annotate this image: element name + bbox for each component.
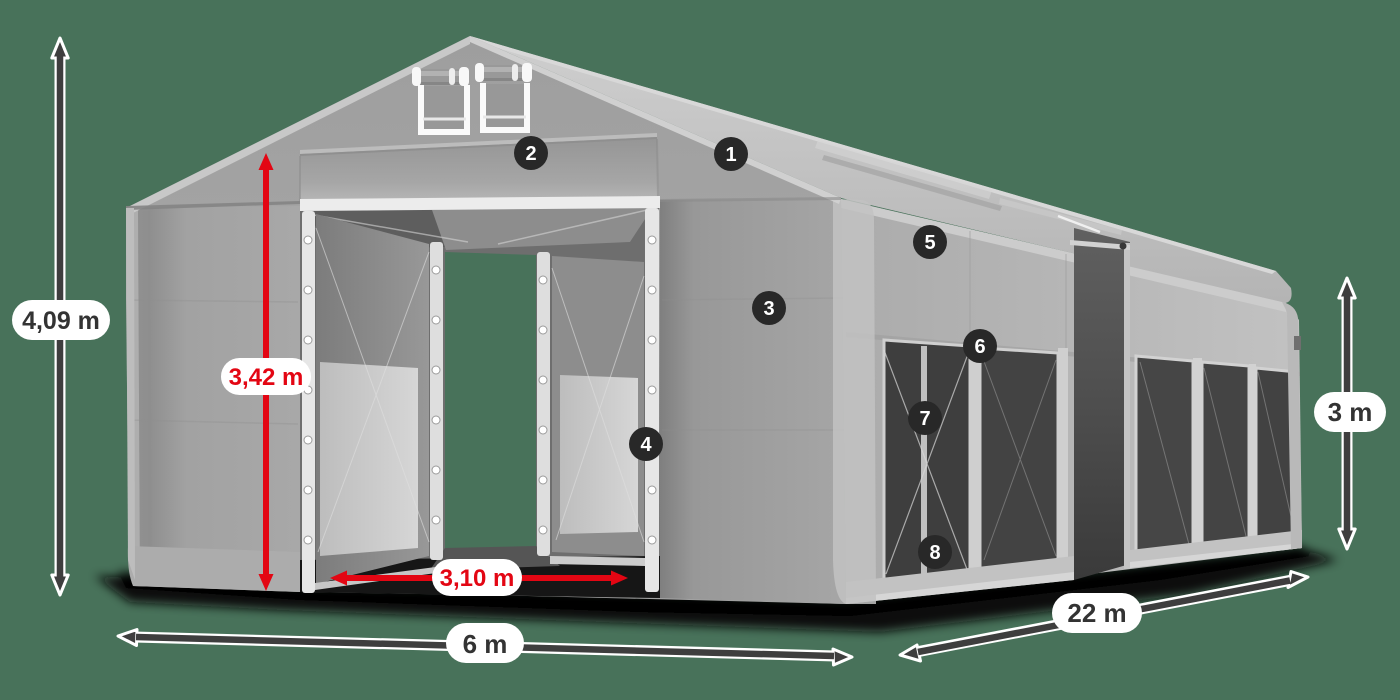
svg-text:4,09 m: 4,09 m: [22, 307, 100, 335]
svg-text:1: 1: [725, 144, 736, 166]
svg-text:5: 5: [924, 232, 935, 254]
svg-text:6: 6: [974, 336, 985, 358]
svg-text:4: 4: [640, 434, 652, 456]
svg-text:3 m: 3 m: [1328, 397, 1373, 427]
svg-text:3,42 m: 3,42 m: [229, 364, 304, 391]
svg-text:3: 3: [763, 298, 774, 320]
svg-text:7: 7: [919, 408, 930, 430]
svg-text:22 m: 22 m: [1067, 598, 1126, 628]
svg-text:3,10 m: 3,10 m: [440, 565, 515, 592]
svg-text:8: 8: [929, 542, 940, 564]
svg-text:2: 2: [525, 143, 536, 165]
svg-text:6 m: 6 m: [463, 629, 508, 659]
